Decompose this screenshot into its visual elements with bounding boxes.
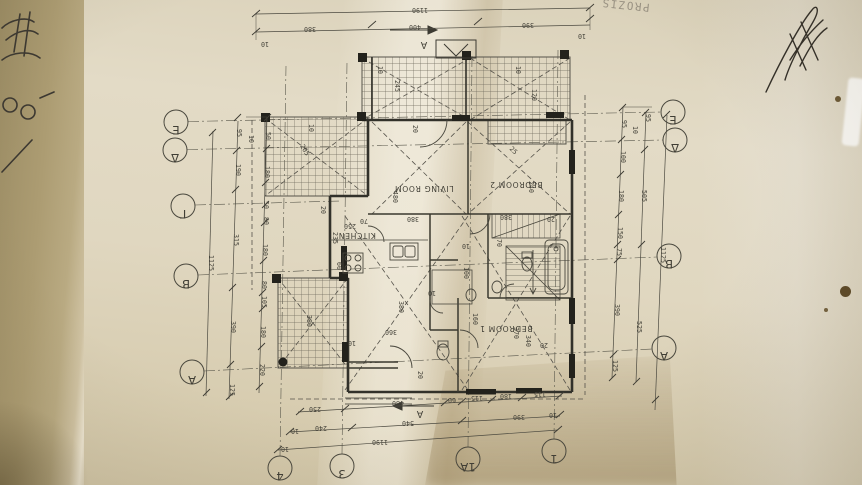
dim-label: 250 [344,222,356,230]
dim-label: 100 [619,151,627,163]
dim-label: 380 [500,213,512,221]
dim-label: 75 [615,248,623,256]
dim-label: 390 [229,321,237,333]
dim-label: 380 [407,215,419,223]
dim-label: A [416,408,423,419]
dim-label: 1190 [412,6,428,14]
dim-label: 340 [524,335,532,347]
dim-label: 180 [259,326,267,338]
dim-label: 50 [262,201,270,209]
dim-label: 10 [261,40,269,48]
dim-label: 10 [291,427,299,435]
dim-label: 390 [613,304,621,316]
washbasin [466,289,476,301]
photographed-floor-plan: EΔΓBAEΔBA431A1 LIVING ROOMBEDROOM 2KITCH… [0,0,862,485]
grid-bubbles: EΔΓBAEΔBA431A1 [163,100,687,483]
grid-bubble-label: 3 [338,467,345,481]
floor-plan-drawing: EΔΓBAEΔBA431A1 LIVING ROOMBEDROOM 2KITCH… [0,0,862,485]
dim-label: 20 [547,215,555,223]
dim-label: 390 [513,413,525,421]
dim-label: 360 [385,328,397,336]
dim-label: 380 [304,25,316,33]
dim-label: 115 [471,394,483,402]
grid-bubble-label: Δ [171,151,179,165]
washbasin-2 [492,281,502,293]
dim-label: 50 [264,132,272,140]
grid-bubble-label: Δ [671,141,679,155]
dim-label: 245 [393,80,401,92]
room-label: KITCHEN [338,231,376,240]
dim-label: 95 [644,114,652,122]
room-label: BEDROOM 1 [479,324,532,333]
handwritten-signature [766,7,827,92]
dim-label: 240 [527,181,535,193]
dim-label: 70 [360,217,368,225]
wc-toilet [437,344,449,360]
dim-label: 235 [331,232,339,244]
dim-label: 390 [522,21,534,29]
dim-label: 10 [462,242,470,250]
room-label: LIVING ROOM [394,184,453,193]
dim-label: 505 [640,190,648,202]
dim-label: 60 [448,396,456,404]
dim-label: 315 [232,234,240,246]
dim-label: 10 [514,66,522,74]
dim-label: 480 [392,399,404,407]
dim-label: A [420,39,427,50]
dim-label: 1125 [659,247,667,263]
dim-label: 105 [260,296,268,308]
dim-label: 1125 [207,255,215,271]
grid-bubble-label: E [172,123,179,137]
dim-label: 540 [402,419,414,427]
grid-bubble-label: 1A [460,460,475,474]
dim-label: 80 [260,281,268,289]
dim-label: 95 [620,120,628,128]
dim-label: 20 [319,206,327,214]
dim-label: 10 [247,135,255,143]
dim-label: 100 [462,267,470,279]
dim-label: 10 [549,411,557,419]
dim-label: 370 [512,327,520,339]
dim-label: 180 [261,244,269,256]
dim-label: 10 [631,126,639,134]
dim-label: 180 [500,392,512,400]
dim-label: 10 [348,339,356,347]
grid-bubble-label: 4 [276,469,283,483]
kitchen-sink [390,243,418,260]
dim-label: 120 [530,89,538,101]
dim-label: 10 [376,66,384,74]
dim-label: 1190 [372,438,388,446]
dim-label: 10 [307,124,315,132]
dim-label: 250 [309,405,321,413]
dim-label: 70 [495,239,503,247]
dim-label: 525 [635,321,643,333]
grid-bubble-label: 1 [550,452,557,466]
dim-label: 220 [258,364,266,376]
dim-label: 400 [409,23,421,31]
dim-label: 150 [616,227,624,239]
dim-label: 190 [234,164,242,176]
dim-label: 240 [315,424,327,432]
dim-label: 125 [228,384,236,396]
stamp-text: PROZIS [600,0,650,14]
dim-label: 80 [262,217,270,225]
dim-label: 125 [611,360,619,372]
dim-label: 180 [263,166,271,178]
handwritten-mark-top-left [2,12,54,172]
dim-label: 380 [397,301,405,313]
dim-label: 20 [411,125,419,133]
dim-label: 60 [335,262,343,270]
dim-label: 95 [235,129,243,137]
dim-label: 115 [534,390,546,398]
dim-label: 20 [416,371,424,379]
dim-label: 180 [617,190,625,202]
dim-label: 25 [508,145,519,156]
grid-bubble-label: E [669,113,676,127]
dim-label: 10 [281,445,289,453]
dim-label: 20 [540,341,548,349]
grid-bubble-label: Γ [179,207,186,221]
dim-label: 10 [428,289,436,297]
dim-label: 380 [305,315,313,327]
dim-label: 480 [391,191,399,203]
grid-bubble-label: A [188,373,196,387]
grid-bubble-label: A [660,349,668,363]
dim-label: 160 [471,313,479,325]
dim-label: 10 [578,32,586,40]
grid-bubble-label: B [182,277,190,291]
